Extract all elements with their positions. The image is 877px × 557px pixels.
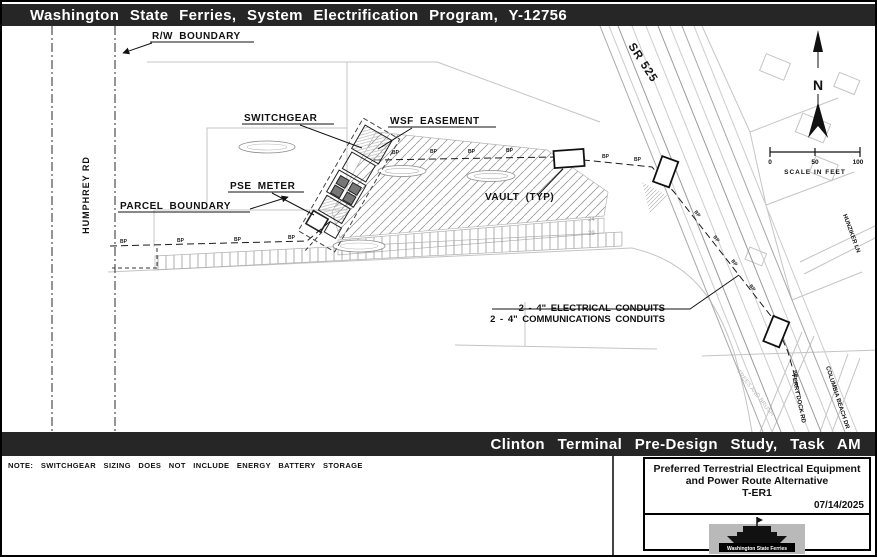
north-label: N (813, 77, 823, 93)
bp-marker-label: BP (177, 238, 185, 244)
humphrey-rd-label: HUMPHREY RD (81, 156, 91, 234)
title-block: Preferred Terrestrial Electrical Equipme… (643, 457, 871, 551)
switchgear-note: NOTE: SWITCHGEAR SIZING DOES NOT INCLUDE… (8, 461, 363, 470)
site-plan-drawing: 24 29 BP BP BP BP BP BP BP BP BP BP (2, 26, 875, 434)
title-block-rule (645, 513, 869, 515)
scale-caption: SCALE IN FEET (784, 169, 846, 176)
bp-marker-label: BP (729, 259, 738, 269)
pse-meter-label: PSE METER (230, 181, 296, 192)
rw-boundary-label: R/W BOUNDARY (152, 31, 241, 42)
bp-marker-label: BP (392, 150, 400, 156)
bp-marker-label: BP (468, 149, 476, 155)
title-block-date: 07/14/2025 (645, 500, 869, 511)
title-block-line1: Preferred Terrestrial Electrical Equipme… (645, 463, 869, 475)
plan-sheet: Washington State Ferries, System Electri… (0, 0, 877, 557)
vault-typ-label: VAULT (TYP) (485, 192, 554, 203)
bp-marker-label: BP (602, 154, 610, 160)
bp-marker-label: BP (747, 284, 756, 294)
scale-tick-100: 100 (853, 159, 864, 166)
stall-count: 24 (588, 217, 595, 223)
communications-conduits-label: 2 - 4" COMMUNICATIONS CONDUITS (490, 314, 665, 325)
scale-tick-0: 0 (768, 159, 772, 166)
stall-count: 29 (588, 231, 595, 237)
bp-marker-label: BP (288, 235, 296, 241)
sheet-header-banner: Washington State Ferries, System Electri… (2, 4, 875, 26)
bp-marker-label: BP (234, 237, 242, 243)
sheet-footer-banner: Clinton Terminal Pre-Design Study, Task … (2, 432, 875, 456)
columbia-beach-dr-label: COLUMBIA BEACH DR (824, 366, 850, 431)
title-block-line2: and Power Route Alternative (645, 475, 869, 487)
sheet-title: Washington State Ferries, System Electri… (30, 7, 567, 24)
electrical-conduits-label: 2 - 4" ELECTRICAL CONDUITS (519, 303, 665, 314)
scale-bar: 0 50 100 SCALE IN FEET (768, 147, 864, 176)
wsf-ferry-logo-icon: Washington State Ferries (705, 516, 809, 556)
title-block-line3: T-ER1 (645, 487, 869, 499)
bp-marker-label: BP (120, 239, 128, 245)
bp-marker-label: BP (430, 149, 438, 155)
parcel-boundary-label: PARCEL BOUNDARY (120, 201, 231, 212)
ferry-dock-rd-label: FERRY DOCK RD (790, 374, 806, 424)
wsf-easement-label: WSF EASEMENT (390, 116, 480, 127)
section-divider (612, 456, 614, 555)
wsf-logo: Washington State Ferries (645, 516, 869, 556)
sheet-bottom-section: NOTE: SWITCHGEAR SIZING DOES NOT INCLUDE… (2, 456, 875, 555)
switchgear-label: SWITCHGEAR (244, 113, 318, 124)
bp-marker-label: BP (506, 148, 514, 154)
wsf-logo-text: Washington State Ferries (727, 546, 787, 552)
background-buildings (745, 54, 860, 266)
bp-marker-label: BP (634, 157, 642, 163)
scale-tick-50: 50 (811, 159, 819, 166)
sheet-subtitle: Clinton Terminal Pre-Design Study, Task … (491, 436, 861, 453)
